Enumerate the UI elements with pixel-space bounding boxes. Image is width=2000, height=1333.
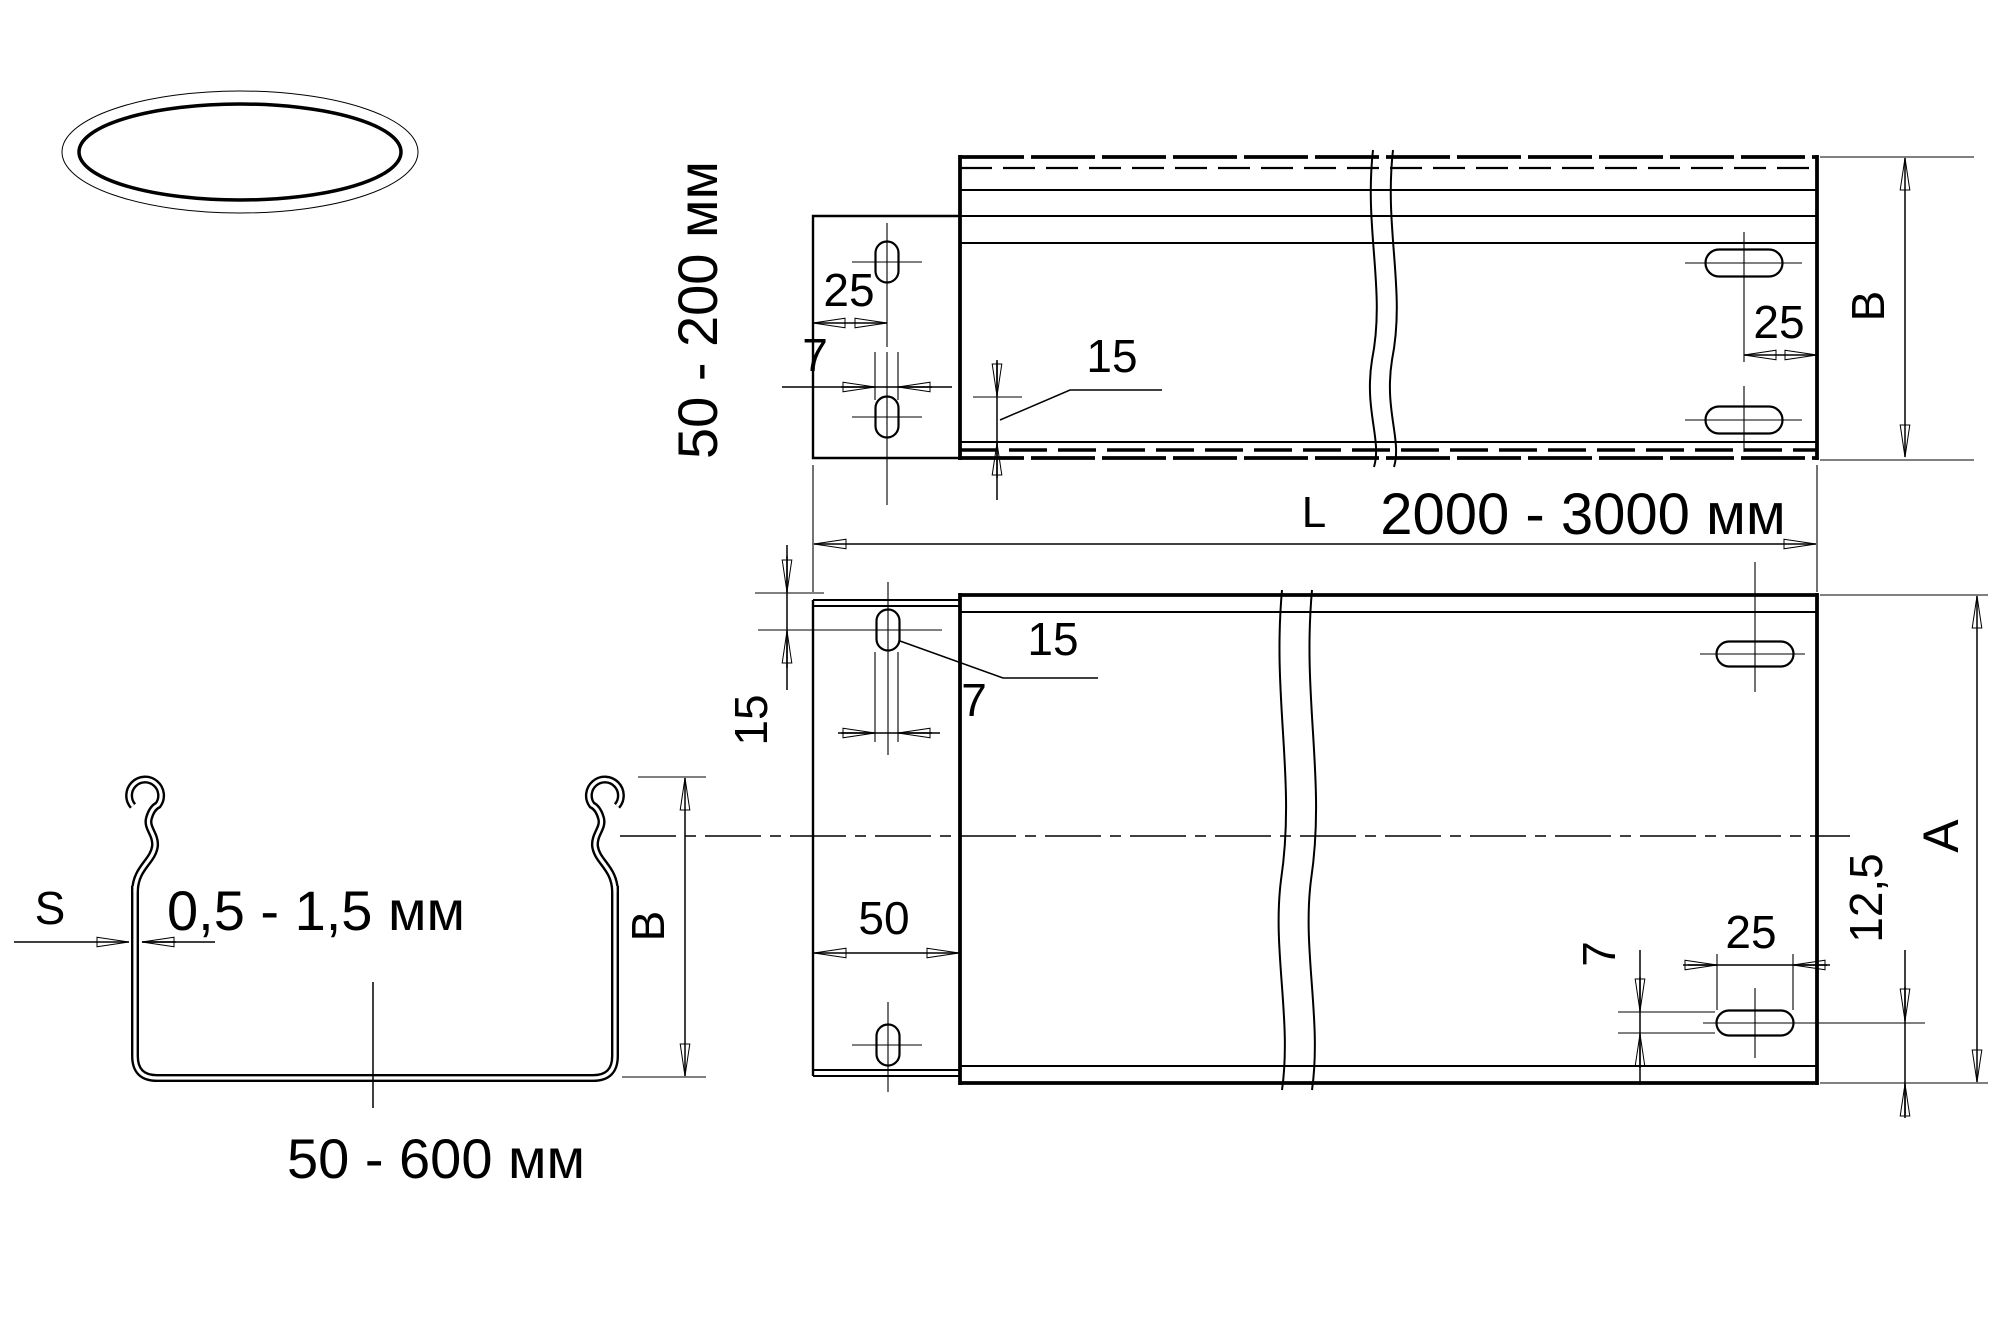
plan-dim-25-value: 25 [1725,906,1776,958]
plan-leader-15-value: 15 [1027,613,1078,665]
plan-dim-15: 15 [725,545,824,746]
section-dim-B: B [622,777,706,1077]
plan-connector-plate [813,600,960,1076]
length-range: 2000 - 3000 мм [1380,482,1785,547]
plan-dim-7-bottom: 7 [1573,941,1715,1085]
side-dim-25-right-value: 25 [1753,296,1804,348]
section-view: S 0,5 - 1,5 мм B 50 - 600 мм [14,777,706,1190]
side-dim-B: B [1820,157,1974,460]
side-break-lines [1370,150,1397,467]
section-dim-S-letter: S [35,882,66,934]
plan-dim-A-letter: A [1913,819,1969,853]
plan-dim-7-top: 7 [838,652,987,742]
plan-plate-slot-centerlines [758,582,942,1092]
plan-dim-50-value: 50 [858,892,909,944]
plan-dim-50: 50 [814,892,959,953]
plan-dim-15-value: 15 [725,694,777,745]
section-thickness-range: 0,5 - 1,5 мм [167,879,465,942]
side-dim-15: 15 [973,330,1162,500]
plan-dim-12-5: 12,5 [1840,853,1905,1118]
side-dim-7-value: 7 [802,329,828,381]
side-height-range-label: 50 - 200 мм [666,161,729,459]
plan-right-slot-centerlines [1700,562,1925,1058]
logo-text: СОЭМИ [123,117,365,188]
side-view: 25 7 15 [666,150,1974,505]
technical-drawing-page: СОЭМИ 25 [0,0,2000,1333]
plan-leader-15: 15 [900,613,1098,678]
side-dim-B-letter: B [1842,291,1894,322]
plan-dim-12-5-value: 12,5 [1840,853,1892,943]
length-dimension: L 2000 - 3000 мм [813,465,1817,592]
section-width-range: 50 - 600 мм [287,1127,585,1190]
cable-tray-drawing: СОЭМИ 25 [0,0,2000,1333]
side-dim-15-value: 15 [1086,330,1137,382]
plan-dim-A: A [1820,595,1988,1083]
plan-dim-25: 25 [1683,906,1830,1010]
side-dim-25-right: 25 [1744,296,1817,355]
length-letter: L [1302,488,1326,537]
logo: СОЭМИ [62,91,418,213]
plan-dim-7-top-value: 7 [961,674,987,726]
plan-view: 15 15 7 50 [620,545,1988,1118]
side-dim-7: 7 [782,329,952,400]
plan-dim-7-bottom-value: 7 [1573,941,1625,967]
side-dim-25-left-value: 25 [823,264,874,316]
section-dim-B-letter: B [622,911,674,942]
plan-break-lines [1279,590,1316,1090]
